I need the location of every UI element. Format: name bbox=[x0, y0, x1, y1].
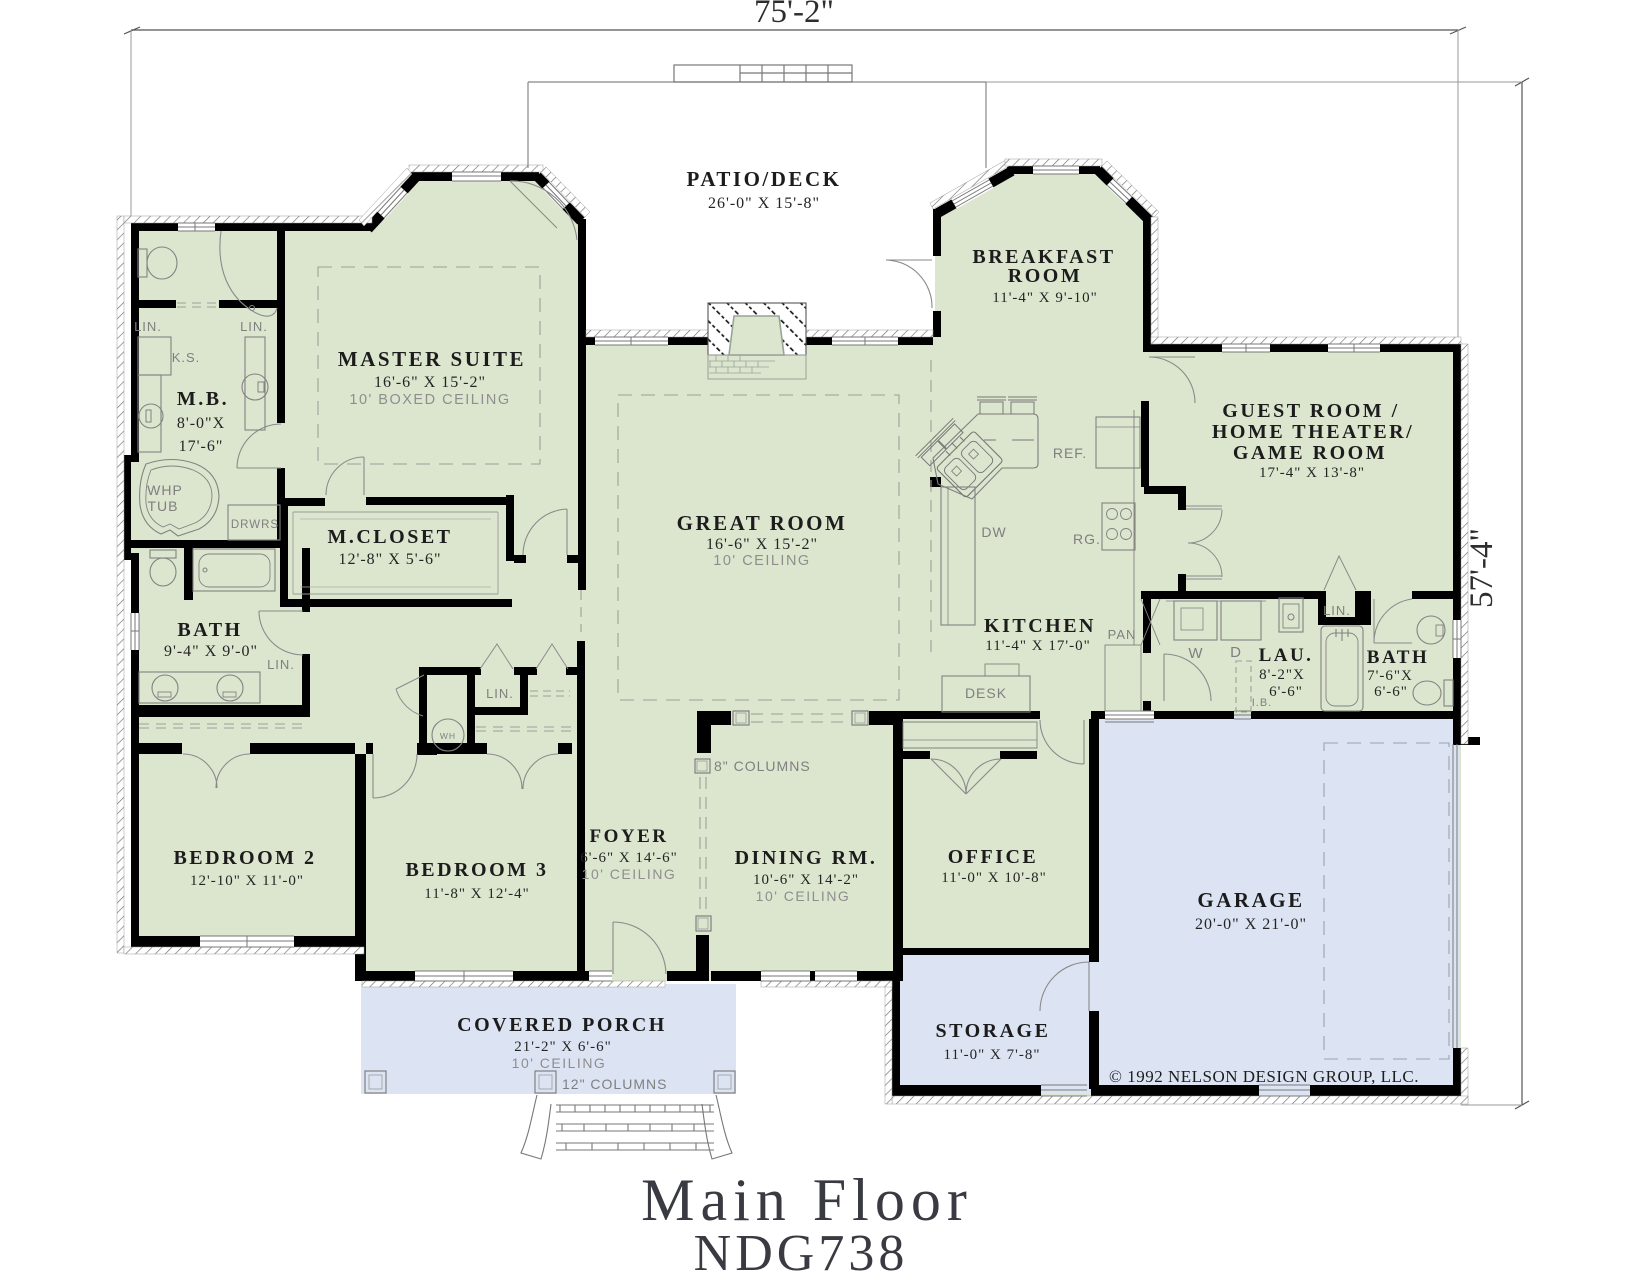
svg-text:8'-0"X: 8'-0"X bbox=[177, 415, 225, 432]
svg-text:WH: WH bbox=[440, 731, 456, 741]
svg-text:10' CEILING: 10' CEILING bbox=[713, 553, 810, 569]
svg-text:MASTER SUITE: MASTER SUITE bbox=[338, 347, 526, 371]
svg-text:BEDROOM 2: BEDROOM 2 bbox=[173, 847, 316, 869]
svg-text:16'-6" X 15'-2": 16'-6" X 15'-2" bbox=[374, 374, 486, 391]
svg-text:GUEST ROOM /: GUEST ROOM / bbox=[1222, 400, 1399, 422]
svg-text:LIN.: LIN. bbox=[486, 686, 514, 701]
svg-text:BATH: BATH bbox=[177, 619, 242, 641]
svg-text:10' CEILING: 10' CEILING bbox=[512, 1055, 607, 1071]
svg-text:10'-6" X 14'-2": 10'-6" X 14'-2" bbox=[753, 872, 859, 888]
svg-text:12'-8" X 5'-6": 12'-8" X 5'-6" bbox=[338, 551, 441, 568]
svg-text:BEDROOM 3: BEDROOM 3 bbox=[405, 859, 548, 881]
svg-text:M.CLOSET: M.CLOSET bbox=[327, 526, 452, 548]
svg-text:K.S.: K.S. bbox=[172, 350, 201, 365]
svg-text:DW: DW bbox=[981, 524, 1006, 540]
svg-text:PATIO/DECK: PATIO/DECK bbox=[687, 167, 842, 191]
svg-text:TUB: TUB bbox=[148, 498, 179, 514]
svg-text:D: D bbox=[1230, 644, 1242, 661]
svg-text:10' CEILING: 10' CEILING bbox=[756, 888, 851, 904]
svg-text:20'-0" X 21'-0": 20'-0" X 21'-0" bbox=[1195, 916, 1307, 933]
svg-text:REF.: REF. bbox=[1053, 445, 1087, 461]
svg-text:DINING RM.: DINING RM. bbox=[735, 847, 878, 869]
svg-text:STORAGE: STORAGE bbox=[936, 1020, 1051, 1042]
svg-text:LIN.: LIN. bbox=[1323, 603, 1351, 618]
svg-text:16'-6" X 15'-2": 16'-6" X 15'-2" bbox=[706, 536, 818, 553]
svg-text:KITCHEN: KITCHEN bbox=[984, 615, 1096, 637]
svg-text:6'-6": 6'-6" bbox=[1374, 684, 1408, 700]
svg-text:8'-2"X: 8'-2"X bbox=[1259, 667, 1305, 683]
svg-text:I.B.: I.B. bbox=[1252, 697, 1273, 709]
svg-text:17'-4" X 13'-8": 17'-4" X 13'-8" bbox=[1259, 465, 1365, 481]
svg-text:6'-6" X 14'-6": 6'-6" X 14'-6" bbox=[580, 850, 677, 866]
svg-text:11'-4" X 9'-10": 11'-4" X 9'-10" bbox=[992, 290, 1097, 306]
svg-text:ROOM: ROOM bbox=[1008, 265, 1082, 287]
svg-text:LIN.: LIN. bbox=[240, 319, 268, 334]
svg-text:11'-0" X 7'-8": 11'-0" X 7'-8" bbox=[944, 1047, 1041, 1063]
svg-text:HOME THEATER/: HOME THEATER/ bbox=[1212, 421, 1414, 443]
svg-text:8" COLUMNS: 8" COLUMNS bbox=[714, 758, 811, 774]
svg-text:9'-4" X 9'-0": 9'-4" X 9'-0" bbox=[164, 643, 258, 660]
svg-text:GAME ROOM: GAME ROOM bbox=[1233, 442, 1387, 464]
svg-text:BATH: BATH bbox=[1367, 647, 1429, 668]
svg-text:11'-8" X 12'-4": 11'-8" X 12'-4" bbox=[424, 886, 529, 902]
svg-text:W: W bbox=[1188, 645, 1203, 662]
svg-text:LIN.: LIN. bbox=[134, 319, 162, 334]
svg-text:COVERED PORCH: COVERED PORCH bbox=[457, 1014, 667, 1036]
svg-text:LIN.: LIN. bbox=[267, 657, 295, 672]
svg-text:GARAGE: GARAGE bbox=[1197, 888, 1304, 912]
svg-text:12'-10" X 11'-0": 12'-10" X 11'-0" bbox=[190, 873, 304, 889]
svg-text:10' BOXED CEILING: 10' BOXED CEILING bbox=[349, 392, 510, 408]
svg-text:RG.: RG. bbox=[1073, 531, 1101, 547]
svg-text:12" COLUMNS: 12" COLUMNS bbox=[562, 1076, 667, 1092]
svg-text:© 1992 NELSON DESIGN GROUP, LL: © 1992 NELSON DESIGN GROUP, LLC. bbox=[1109, 1067, 1419, 1086]
svg-text:DRWRS: DRWRS bbox=[231, 519, 279, 531]
svg-text:GREAT ROOM: GREAT ROOM bbox=[677, 511, 848, 535]
svg-text:M.B.: M.B. bbox=[177, 388, 229, 410]
svg-text:Main Floor: Main Floor bbox=[641, 1167, 973, 1233]
svg-text:FOYER: FOYER bbox=[590, 826, 669, 847]
svg-text:DESK: DESK bbox=[965, 685, 1007, 701]
svg-text:7'-6"X: 7'-6"X bbox=[1367, 668, 1413, 684]
svg-text:21'-2" X 6'-6": 21'-2" X 6'-6" bbox=[514, 1039, 611, 1055]
svg-text:17'-6": 17'-6" bbox=[179, 438, 224, 455]
svg-text:11'-0" X 10'-8": 11'-0" X 10'-8" bbox=[941, 870, 1046, 886]
svg-text:PAN: PAN bbox=[1108, 627, 1137, 642]
svg-text:OFFICE: OFFICE bbox=[948, 846, 1039, 868]
svg-text:75'-2": 75'-2" bbox=[754, 0, 834, 30]
svg-text:LAU.: LAU. bbox=[1259, 645, 1314, 666]
svg-text:NDG738: NDG738 bbox=[694, 1225, 909, 1275]
svg-text:26'-0" X 15'-8": 26'-0" X 15'-8" bbox=[708, 195, 820, 212]
svg-text:10' CEILING: 10' CEILING bbox=[582, 866, 677, 882]
svg-text:WHP: WHP bbox=[147, 482, 183, 498]
svg-text:11'-4" X 17'-0": 11'-4" X 17'-0" bbox=[985, 638, 1090, 654]
svg-text:6'-6": 6'-6" bbox=[1269, 684, 1303, 700]
svg-text:57'-4": 57'-4" bbox=[1464, 528, 1500, 608]
